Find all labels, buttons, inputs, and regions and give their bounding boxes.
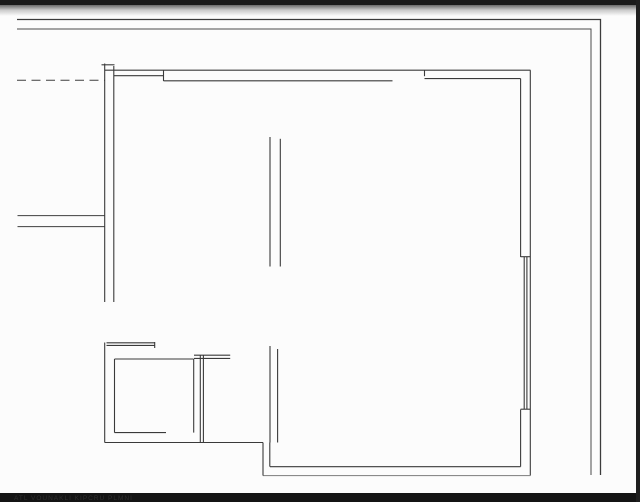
svg-text:ATL VOUNAKLI KIPCRU PLMNI: ATL VOUNAKLI KIPCRU PLMNI [14, 495, 133, 502]
